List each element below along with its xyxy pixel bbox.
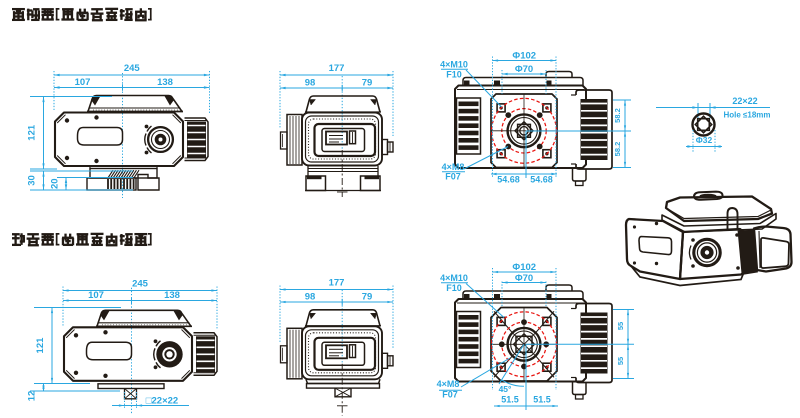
svg-text:138: 138	[157, 77, 173, 88]
svg-text:55: 55	[616, 322, 625, 330]
svg-text:58.2: 58.2	[613, 108, 622, 123]
svg-text:30: 30	[27, 175, 38, 186]
svg-text:Φ70: Φ70	[515, 64, 533, 75]
svg-text:79: 79	[362, 292, 373, 303]
svg-text:58.2: 58.2	[613, 142, 622, 157]
svg-text:55: 55	[616, 357, 625, 365]
svg-text:245: 245	[124, 63, 141, 74]
svg-text:20: 20	[50, 178, 61, 189]
svg-text:79: 79	[362, 78, 373, 89]
svg-text:F07: F07	[445, 172, 461, 182]
svg-text:98: 98	[305, 78, 316, 89]
svg-text:107: 107	[88, 290, 104, 301]
svg-text:Φ102: Φ102	[512, 51, 536, 62]
svg-text:12: 12	[27, 391, 38, 402]
svg-text:4×M8: 4×M8	[442, 162, 465, 172]
svg-text:107: 107	[75, 77, 91, 88]
svg-text:Φ32: Φ32	[696, 135, 713, 145]
svg-text:22×22: 22×22	[732, 96, 757, 106]
svg-text:51.5: 51.5	[533, 395, 551, 405]
svg-text:4×M10: 4×M10	[440, 60, 468, 70]
svg-text:177: 177	[329, 278, 345, 289]
svg-text:177: 177	[329, 63, 345, 74]
svg-text:245: 245	[132, 279, 149, 290]
svg-text:Hole ≤18mm: Hole ≤18mm	[723, 111, 770, 120]
svg-text:F10: F10	[446, 283, 462, 293]
svg-text:54.68: 54.68	[497, 175, 520, 185]
svg-text:121: 121	[27, 124, 38, 141]
svg-text:4×M10: 4×M10	[440, 273, 468, 283]
svg-text:F07: F07	[442, 390, 458, 400]
svg-text:138: 138	[164, 290, 180, 301]
svg-text:Φ102: Φ102	[512, 262, 536, 273]
svg-text:54.68: 54.68	[530, 175, 553, 185]
svg-text:Φ70: Φ70	[515, 273, 533, 284]
svg-text:45°: 45°	[499, 384, 512, 394]
svg-text:□22×22: □22×22	[146, 396, 178, 407]
svg-text:4×M8: 4×M8	[437, 379, 460, 389]
svg-text:121: 121	[35, 337, 46, 354]
svg-text:51.5: 51.5	[501, 395, 519, 405]
svg-text:98: 98	[305, 292, 316, 303]
svg-text:F10: F10	[446, 70, 462, 80]
